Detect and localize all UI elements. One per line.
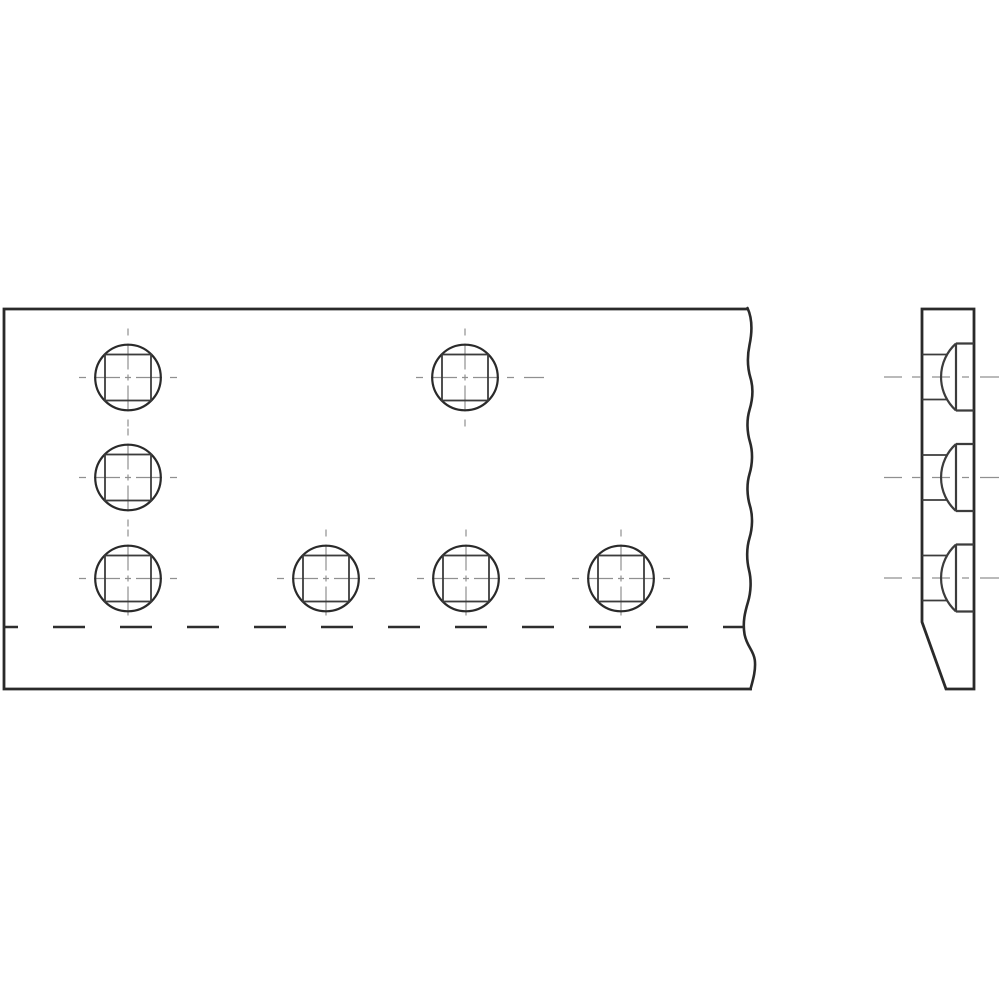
front-view [3, 308, 755, 689]
plate-outline [4, 309, 752, 689]
side-view [884, 309, 999, 689]
carriage-bolt-hole [79, 429, 177, 527]
carriage-bolt-hole [79, 329, 177, 427]
side-profile-outline [922, 309, 974, 689]
bolt-head-side [884, 444, 999, 511]
bolt-head-side [884, 545, 999, 612]
break-line [744, 308, 755, 689]
carriage-bolt-hole [416, 329, 544, 427]
bolt-head-side [884, 344, 999, 411]
carriage-bolt-hole [277, 530, 375, 616]
carriage-bolt-hole [79, 530, 177, 616]
carriage-bolt-hole [572, 530, 670, 616]
drawing-canvas [0, 0, 1000, 1000]
carriage-bolt-hole [417, 530, 545, 616]
technical-drawing [0, 0, 1000, 1000]
